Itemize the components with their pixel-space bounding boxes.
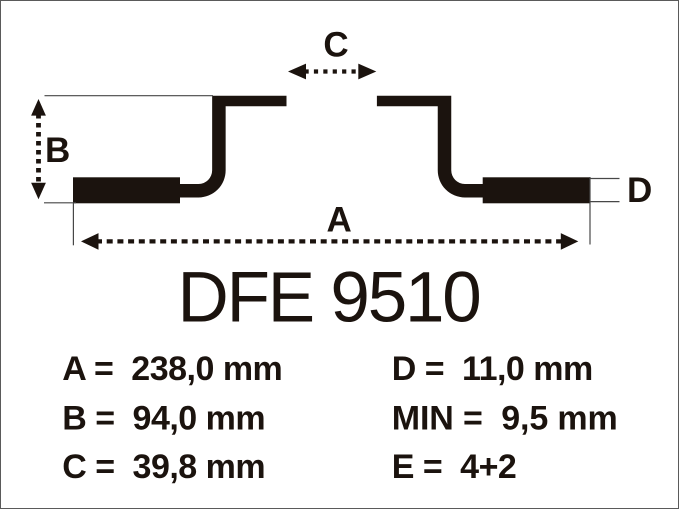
svg-text:C: C — [323, 26, 348, 65]
svg-text:D: D — [627, 171, 652, 210]
svg-text:C = 39,8 mm: C = 39,8 mm — [62, 448, 265, 486]
svg-text:A = 238,0 mm: A = 238,0 mm — [62, 350, 282, 388]
svg-text:MIN = 9,5 mm: MIN = 9,5 mm — [392, 400, 618, 438]
svg-text:B: B — [45, 131, 70, 170]
svg-text:A: A — [327, 200, 352, 239]
svg-text:DFE 9510: DFE 9510 — [178, 258, 480, 337]
svg-text:E = 4+2: E = 4+2 — [392, 448, 517, 486]
svg-text:B = 94,0 mm: B = 94,0 mm — [62, 400, 265, 438]
svg-text:D = 11,0 mm: D = 11,0 mm — [392, 350, 593, 388]
